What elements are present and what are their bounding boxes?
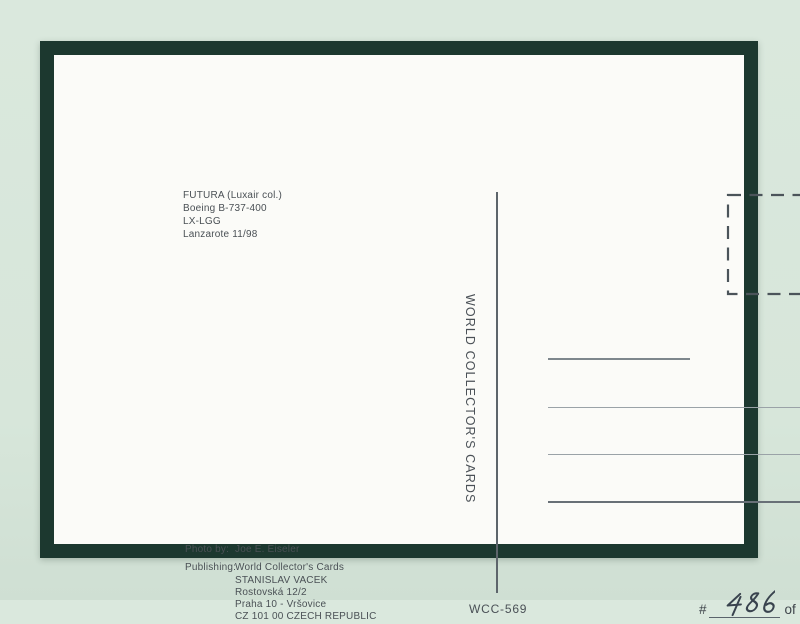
address-line-1 [548, 358, 690, 360]
photo-by-value: Joe E. Eiseler [235, 544, 300, 556]
publishing-row: Publishing: World Collector's Cards [185, 562, 377, 574]
card-code: WCC-569 [469, 602, 527, 616]
center-divider-line [496, 192, 498, 593]
address-line-2 [548, 407, 800, 408]
stamp-dashed-border [725, 192, 800, 298]
edition-total: of 600 [785, 602, 800, 618]
aircraft-title: FUTURA (Luxair col.) [183, 189, 282, 202]
postcard-card: FUTURA (Luxair col.) Boeing B-737-400 LX… [108, 110, 798, 599]
publishing-label: Publishing: [185, 562, 235, 574]
photo-credit-row: Photo by: Joe E. Eiseler [185, 544, 377, 556]
brand-vertical-text: WORLD COLLECTOR'S CARDS [463, 294, 477, 503]
credits-block: Photo by: Joe E. Eiseler Publishing: Wor… [185, 544, 377, 624]
aircraft-location-date: Lanzarote 11/98 [183, 228, 282, 241]
edition-number-handwritten [709, 599, 780, 618]
photo-by-label: Photo by: [185, 544, 235, 556]
publisher-country: CZ 101 00 CZECH REPUBLIC [235, 611, 377, 623]
aircraft-registration: LX-LGG [183, 215, 282, 228]
publisher-street: Rostovská 12/2 [235, 587, 377, 599]
postcard-frame: FUTURA (Luxair col.) Boeing B-737-400 LX… [40, 41, 758, 558]
aircraft-type: Boeing B-737-400 [183, 202, 282, 215]
publisher-city: Praha 10 - Vršovice [235, 599, 377, 611]
address-line-4 [548, 501, 800, 503]
address-line-3 [548, 454, 800, 455]
edition-numbering: # of 600 [699, 599, 800, 618]
stamp-box [725, 192, 800, 303]
aircraft-info: FUTURA (Luxair col.) Boeing B-737-400 LX… [183, 189, 282, 241]
scanned-postcard-back: FUTURA (Luxair col.) Boeing B-737-400 LX… [0, 0, 800, 600]
publisher-contact-name: STANISLAV VACEK [235, 575, 377, 587]
edition-hash-prefix: # [699, 602, 707, 618]
handwritten-486 [711, 588, 775, 618]
publisher-name: World Collector's Cards [235, 562, 344, 574]
